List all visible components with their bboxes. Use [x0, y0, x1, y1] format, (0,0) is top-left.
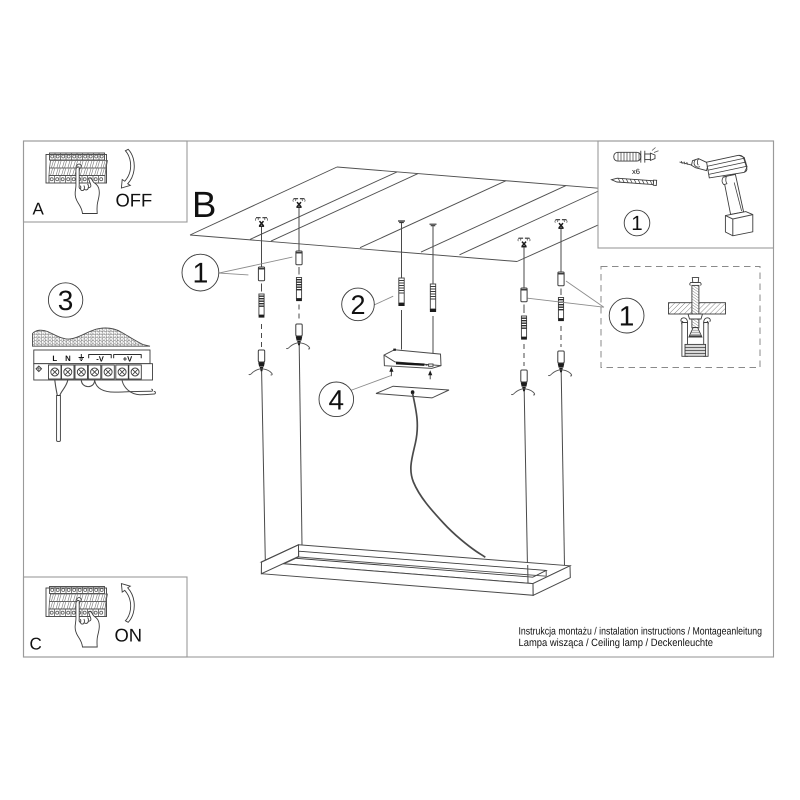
svg-text:A: A: [33, 200, 45, 219]
svg-text:Lampa wisząca / Ceiling lamp /: Lampa wisząca / Ceiling lamp / Deckenleu…: [519, 637, 714, 649]
svg-text:1: 1: [192, 258, 208, 290]
svg-text:N: N: [65, 354, 71, 363]
svg-text:ON: ON: [115, 625, 143, 646]
svg-text:1: 1: [631, 212, 642, 235]
svg-text:B: B: [192, 184, 216, 225]
svg-text:C: C: [30, 635, 42, 654]
svg-text:Instrukcja montażu / instalati: Instrukcja montażu / instalation instruc…: [519, 626, 763, 638]
svg-text:4: 4: [329, 384, 345, 415]
svg-text:-V: -V: [96, 354, 105, 363]
svg-text:+V: +V: [123, 354, 133, 363]
svg-text:2: 2: [350, 290, 365, 320]
svg-text:1: 1: [619, 301, 635, 332]
svg-text:3: 3: [58, 285, 74, 316]
svg-text:x6: x6: [632, 167, 640, 176]
svg-text:OFF: OFF: [116, 190, 153, 211]
svg-text:L: L: [52, 354, 57, 363]
